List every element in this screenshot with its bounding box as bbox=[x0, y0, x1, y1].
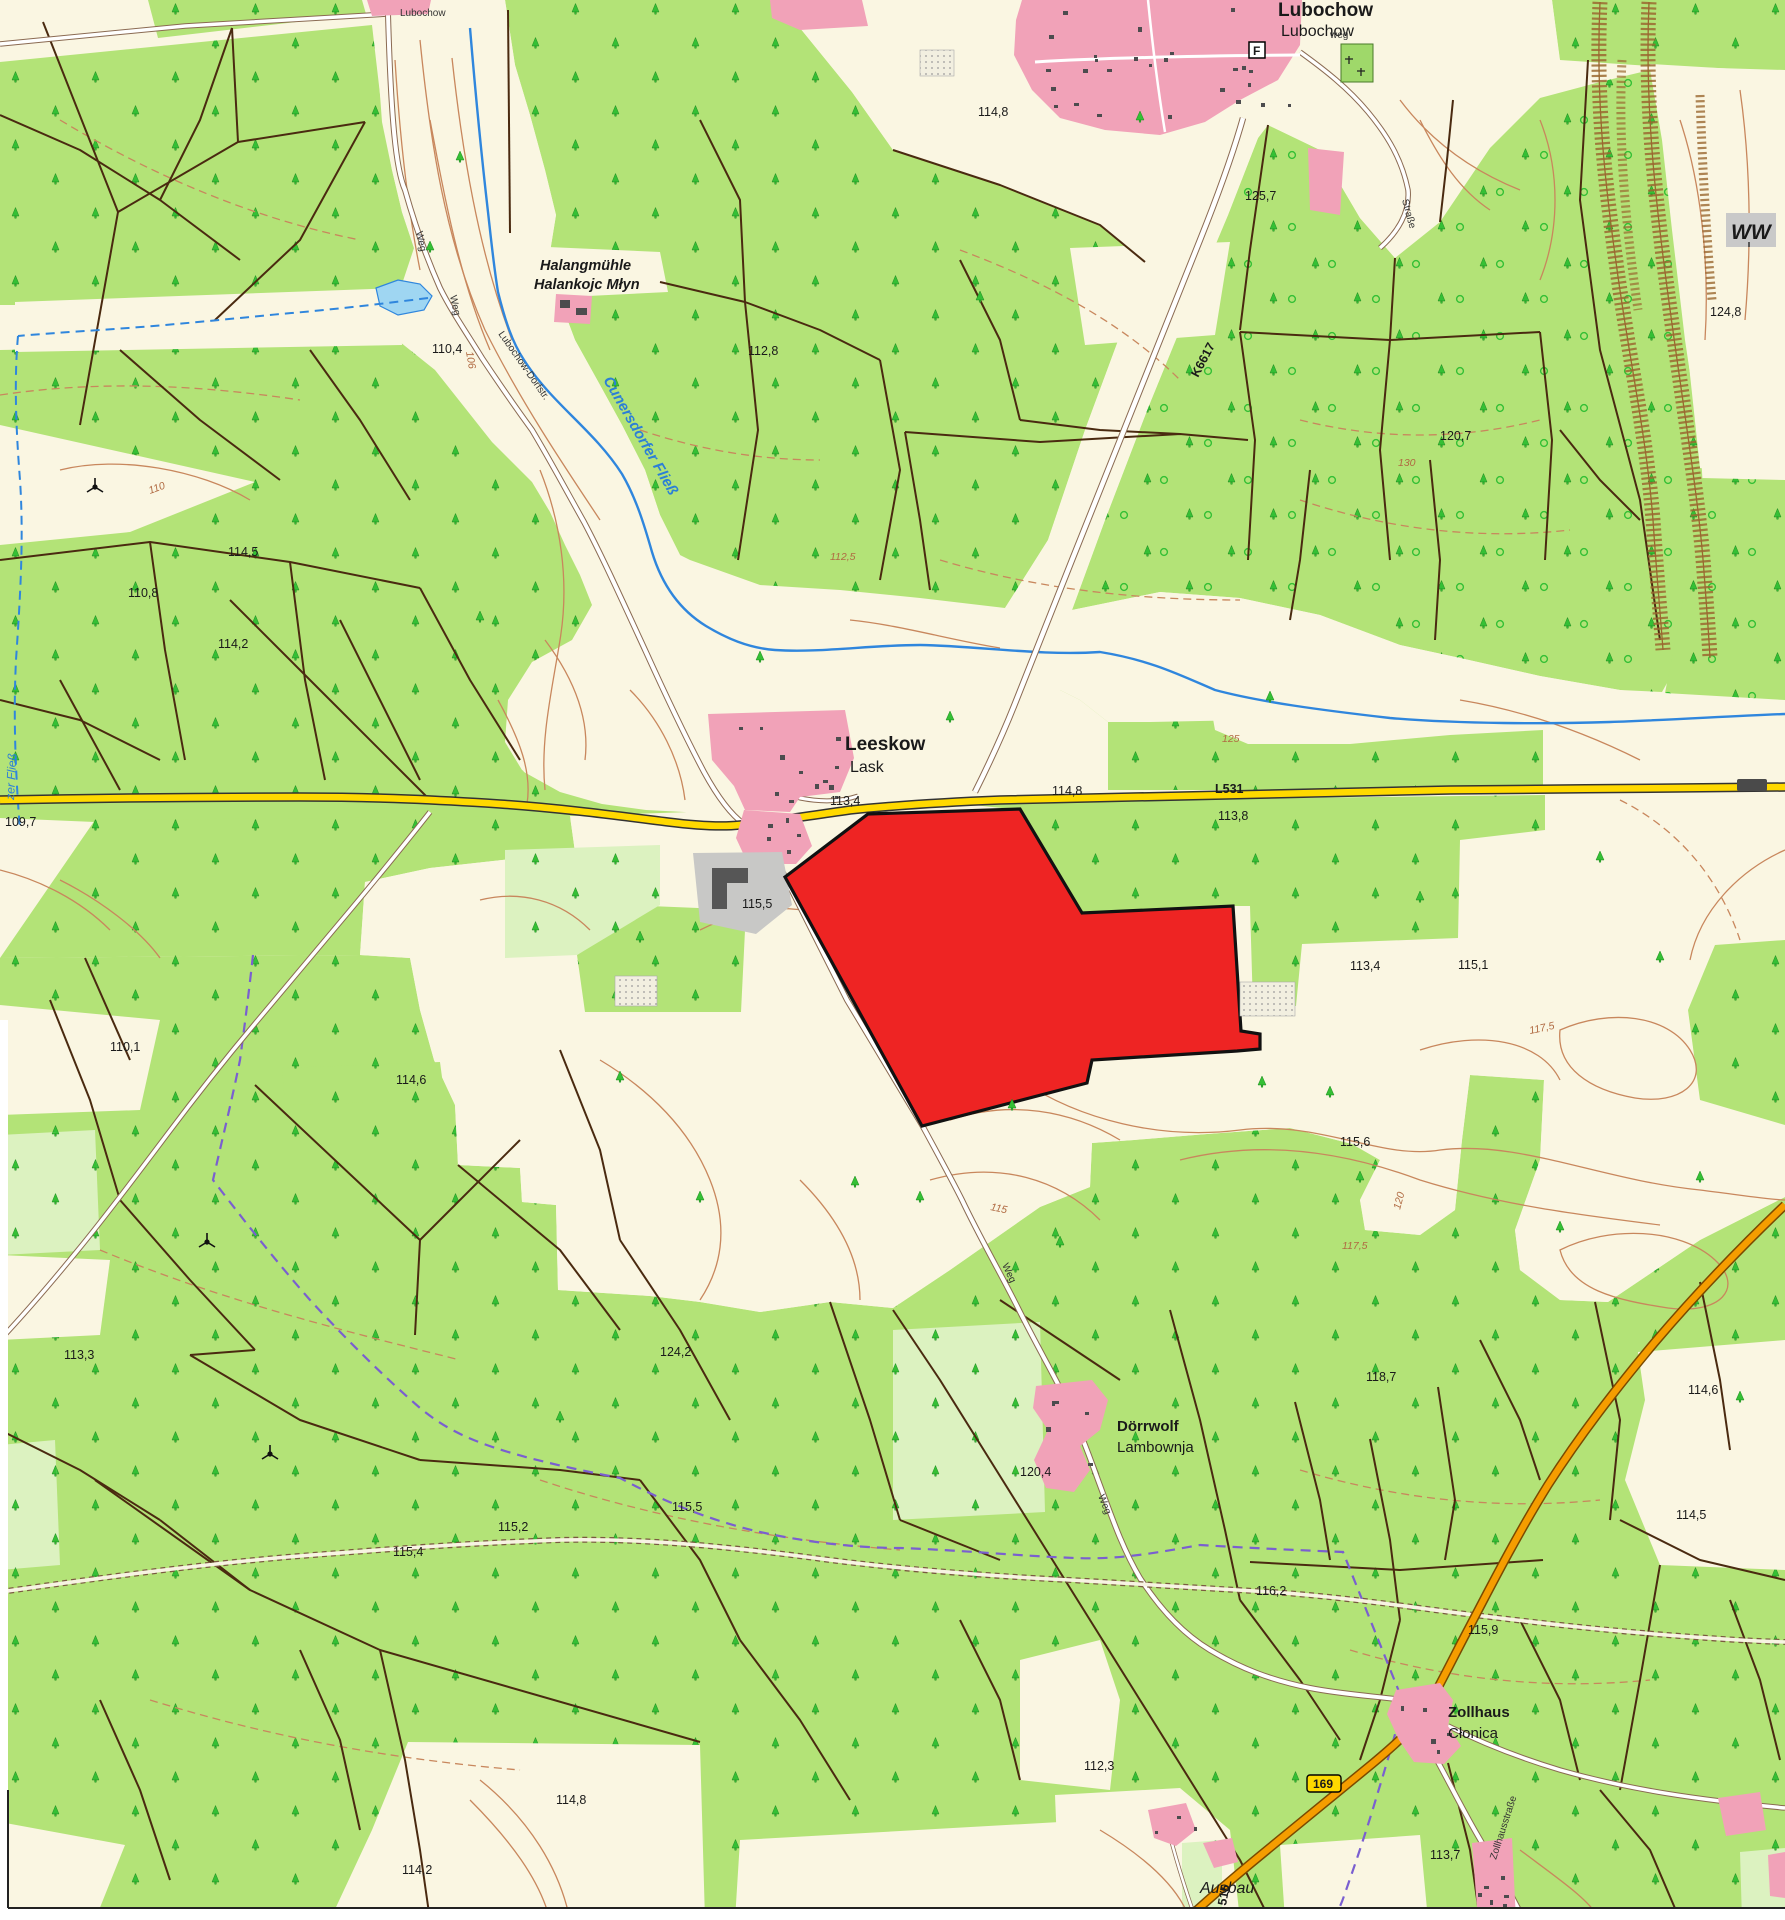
svg-text:Lubochow: Lubochow bbox=[1278, 0, 1373, 21]
svg-text:114,8: 114,8 bbox=[556, 1793, 586, 1807]
svg-text:113,7: 113,7 bbox=[1430, 1848, 1460, 1862]
svg-text:112,5: 112,5 bbox=[830, 551, 856, 563]
svg-text:L531: L531 bbox=[1215, 782, 1244, 796]
svg-text:115,6: 115,6 bbox=[1340, 1135, 1370, 1149]
svg-text:114,2: 114,2 bbox=[218, 637, 248, 651]
svg-text:F: F bbox=[1253, 44, 1260, 58]
svg-text:113,8: 113,8 bbox=[1218, 809, 1248, 823]
svg-text:124,2: 124,2 bbox=[660, 1345, 691, 1359]
svg-text:118,7: 118,7 bbox=[1366, 1370, 1396, 1384]
svg-text:114,2: 114,2 bbox=[402, 1863, 432, 1877]
svg-text:Zollhaus: Zollhaus bbox=[1448, 1704, 1510, 1721]
svg-text:113,4: 113,4 bbox=[1350, 959, 1380, 973]
svg-text:109,7: 109,7 bbox=[5, 815, 36, 829]
svg-text:110,4: 110,4 bbox=[432, 342, 462, 356]
svg-text:112,3: 112,3 bbox=[1084, 1759, 1114, 1773]
svg-text:115,1: 115,1 bbox=[1458, 958, 1488, 972]
svg-text:115,4: 115,4 bbox=[393, 1545, 423, 1559]
svg-text:124,8: 124,8 bbox=[1710, 305, 1741, 319]
svg-text:120,7: 120,7 bbox=[1440, 429, 1471, 443]
svg-text:114,6: 114,6 bbox=[396, 1073, 426, 1087]
svg-text:130: 130 bbox=[1398, 457, 1416, 469]
svg-text:Halankojc Młyn: Halankojc Młyn bbox=[534, 277, 640, 293]
svg-text:115,5: 115,5 bbox=[742, 897, 772, 911]
svg-text:169: 169 bbox=[1313, 1777, 1333, 1791]
svg-text:114,8: 114,8 bbox=[978, 105, 1008, 119]
svg-text:113,4: 113,4 bbox=[830, 794, 860, 808]
svg-text:110,8: 110,8 bbox=[128, 586, 158, 600]
svg-text:112,8: 112,8 bbox=[748, 344, 778, 358]
svg-text:125: 125 bbox=[1222, 733, 1240, 745]
svg-text:116,2: 116,2 bbox=[1256, 1584, 1286, 1598]
svg-text:zer Fließ: zer Fließ bbox=[3, 753, 19, 801]
svg-text:115,9: 115,9 bbox=[1468, 1623, 1498, 1637]
svg-text:117,5: 117,5 bbox=[1342, 1240, 1368, 1252]
svg-text:113,3: 113,3 bbox=[64, 1348, 94, 1362]
svg-text:115,2: 115,2 bbox=[498, 1520, 528, 1534]
svg-text:Leeskow: Leeskow bbox=[845, 734, 925, 755]
svg-text:Lask: Lask bbox=[850, 759, 885, 776]
svg-text:110,1: 110,1 bbox=[110, 1040, 140, 1054]
svg-text:Lubochow: Lubochow bbox=[400, 8, 446, 19]
svg-text:Lambownja: Lambownja bbox=[1117, 1439, 1194, 1456]
svg-text:115,5: 115,5 bbox=[672, 1500, 702, 1514]
svg-text:Cłonica: Cłonica bbox=[1448, 1725, 1499, 1742]
svg-text:125,7: 125,7 bbox=[1245, 189, 1276, 203]
svg-text:WW: WW bbox=[1731, 221, 1773, 244]
svg-text:Halangmühle: Halangmühle bbox=[540, 258, 631, 274]
svg-text:120,4: 120,4 bbox=[1020, 1465, 1051, 1479]
svg-text:Dörrwolf: Dörrwolf bbox=[1117, 1418, 1180, 1435]
svg-text:114,6: 114,6 bbox=[1688, 1383, 1718, 1397]
svg-text:114,8: 114,8 bbox=[1052, 784, 1082, 798]
svg-text:weg: weg bbox=[1329, 30, 1348, 41]
svg-text:114,5: 114,5 bbox=[1676, 1508, 1706, 1522]
svg-text:114,5: 114,5 bbox=[228, 545, 258, 559]
